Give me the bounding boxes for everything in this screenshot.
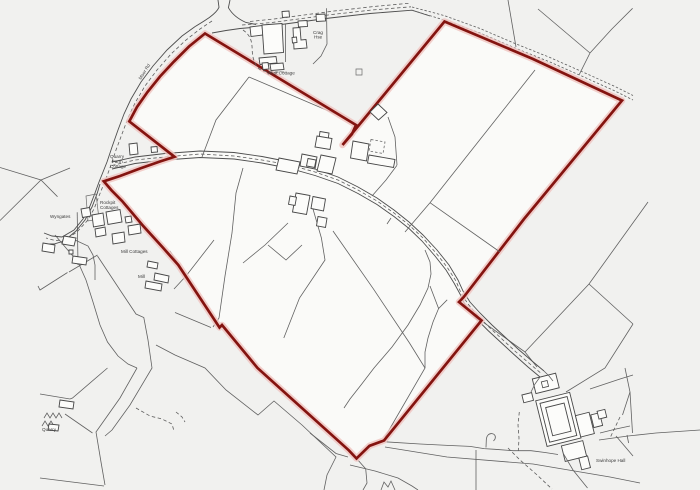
svg-text:Cottage: Cottage (110, 164, 127, 169)
svg-text:Cottages: Cottages (100, 205, 119, 210)
svg-text:West Cottage: West Cottage (267, 71, 295, 76)
svg-text:Swinhope Hall: Swinhope Hall (596, 458, 625, 463)
svg-text:Mill: Mill (138, 274, 145, 279)
svg-text:Mill Cottages: Mill Cottages (121, 249, 148, 254)
svg-text:Quarry: Quarry (42, 427, 57, 432)
svg-text:Wyngates: Wyngates (50, 214, 71, 219)
svg-text:Hse: Hse (314, 35, 323, 40)
